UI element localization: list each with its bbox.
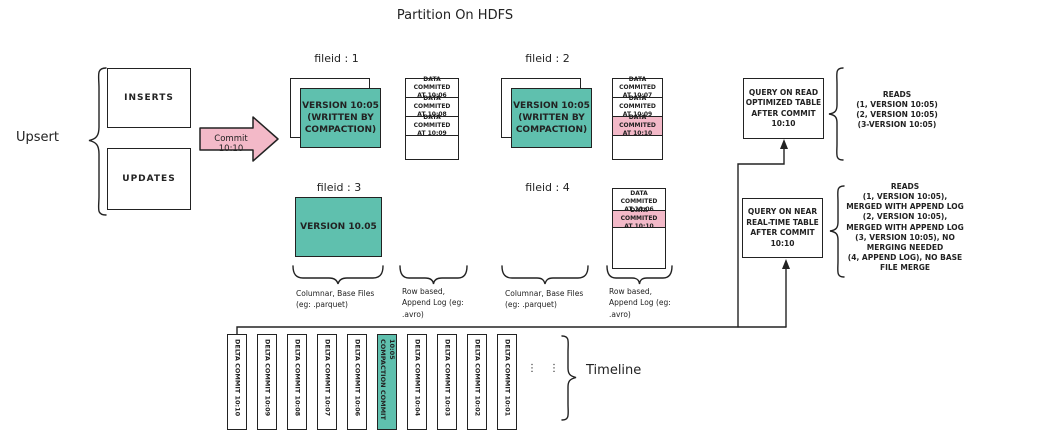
reads-near-real-time: READS (1, VERSION 10:05), MERGED WITH AP…: [845, 182, 965, 273]
page-title: Partition On HDFS: [355, 8, 555, 23]
columnar-brace-1: [293, 266, 383, 284]
fileid-3-label: fileid : 3: [295, 181, 383, 194]
arrowhead-near-real-time: [782, 259, 790, 269]
fileid-1-label: fileid : 1: [290, 52, 383, 65]
fileid-4-append-log: DATA COMMITED AT 10:06DATA COMMITED AT 1…: [612, 188, 666, 269]
timeline-ellipsis-1: ⋮: [527, 363, 537, 374]
fileid-3-base-file: VERSION 10.05: [295, 197, 382, 257]
query-read-optimized-text: QUERY ON READ OPTIMIZED TABLE AFTER COMM…: [746, 88, 821, 130]
columnar-base-files-label-2: Columnar, Base Files (eg: .parquet): [505, 288, 583, 311]
query-read-optimized-box: QUERY ON READ OPTIMIZED TABLE AFTER COMM…: [743, 78, 824, 139]
timeline-delta-commit: DELTA COMMIT 10:09: [257, 334, 277, 430]
timeline-commit-label: DELTA COMMIT 10:09: [262, 335, 271, 416]
partition-on-hdfs-diagram: Partition On HDFS Upsert INSERTS UPDATES…: [0, 0, 1048, 447]
row-based-append-log-label-1: Row based, Append Log (eg: .avro): [402, 286, 464, 320]
fileid-2-append-log: DATA COMMITED AT 10:07DATA COMMITED AT 1…: [612, 78, 663, 160]
timeline-delta-commit: DELTA COMMIT 10:04: [407, 334, 427, 430]
commit-arrow-label: Commit 10:10: [202, 134, 260, 154]
rowlog-brace-1: [400, 266, 467, 284]
timeline-delta-commit: DELTA COMMIT 10:06: [347, 334, 367, 430]
fileid-2-base-file: VERSION 10:05 (WRITTEN BY COMPACTION): [511, 88, 592, 148]
fileid-4-label: fileid : 4: [501, 181, 594, 194]
fileid-1-base-file: VERSION 10:05 (WRITTEN BY COMPACTION): [300, 88, 381, 148]
timeline-commit-label: DELTA COMMIT 10:10: [232, 335, 241, 416]
fileid-3-base-text: VERSION 10.05: [300, 221, 377, 233]
timeline-commit-label: DELTA COMMIT 10:08: [292, 335, 301, 416]
timeline-commit-label: DELTA COMMIT 10:07: [322, 335, 331, 416]
timeline-commit-label: COMPACTION COMMIT 10:05: [378, 335, 396, 420]
fileid-1-append-log: DATA COMMITED AT 10:06DATA COMMITED AT 1…: [405, 78, 459, 160]
reads-read-optimized: READS (1, VERSION 10:05) (2, VERSION 10:…: [847, 90, 947, 131]
fileid-1-base-text: VERSION 10:05 (WRITTEN BY COMPACTION): [302, 100, 379, 136]
query-near-real-time-box: QUERY ON NEAR REAL-TIME TABLE AFTER COMM…: [742, 198, 823, 258]
timeline-brace: [562, 336, 576, 420]
reads-brace-2: [830, 186, 844, 277]
fileid-2-label: fileid : 2: [501, 52, 594, 65]
query-near-real-time-text: QUERY ON NEAR REAL-TIME TABLE AFTER COMM…: [746, 207, 819, 249]
timeline-ellipsis-2: ⋮: [549, 363, 559, 374]
upsert-brace: [89, 68, 106, 215]
arrowhead-read-optimized: [780, 139, 788, 149]
upsert-label: Upsert: [16, 130, 59, 145]
timeline-commit-label: DELTA COMMIT 10:01: [502, 335, 511, 416]
updates-label: UPDATES: [122, 174, 175, 184]
timeline-delta-commit: DELTA COMMIT 10:02: [467, 334, 487, 430]
columnar-base-files-label-1: Columnar, Base Files (eg: .parquet): [296, 288, 374, 311]
inserts-label: INSERTS: [124, 93, 174, 103]
inserts-box: INSERTS: [107, 68, 191, 128]
log-entry: DATA COMMITED AT 10:10: [613, 211, 665, 228]
log-entry: DATA COMMITED AT 10:09: [406, 117, 458, 136]
timeline-compaction-commit: COMPACTION COMMIT 10:05: [377, 334, 397, 430]
timeline-commit-label: DELTA COMMIT 10:06: [352, 335, 361, 416]
row-based-append-log-label-2: Row based, Append Log (eg: .avro): [609, 286, 671, 320]
reads-brace-1: [829, 68, 843, 160]
fileid-2-base-text: VERSION 10:05 (WRITTEN BY COMPACTION): [513, 100, 590, 136]
timeline-delta-commit: DELTA COMMIT 10:10: [227, 334, 247, 430]
timeline-delta-commit: DELTA COMMIT 10:07: [317, 334, 337, 430]
timeline-delta-commit: DELTA COMMIT 10:01: [497, 334, 517, 430]
updates-box: UPDATES: [107, 148, 191, 210]
timeline-to-queries-line: [237, 327, 786, 334]
log-entry: DATA COMMITED AT 10:10: [613, 117, 662, 136]
timeline-delta-commit: DELTA COMMIT 10:03: [437, 334, 457, 430]
timeline-commit-label: DELTA COMMIT 10:02: [472, 335, 481, 416]
timeline-delta-commit: DELTA COMMIT 10:08: [287, 334, 307, 430]
columnar-brace-2: [502, 266, 588, 284]
timeline-commit-label: DELTA COMMIT 10:03: [442, 335, 451, 416]
timeline-commit-label: DELTA COMMIT 10:04: [412, 335, 421, 416]
timeline-label: Timeline: [586, 363, 641, 378]
